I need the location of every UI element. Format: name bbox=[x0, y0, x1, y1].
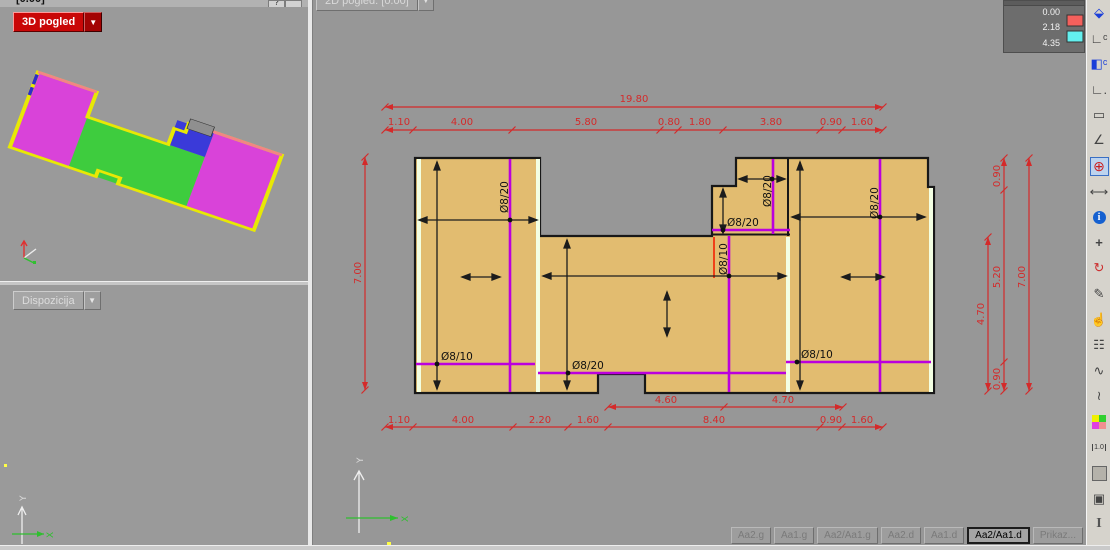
scale-dim-icon[interactable]: 1.0 bbox=[1090, 438, 1109, 457]
panel-dispozicija: Dispozicija ▼ Y X bbox=[0, 285, 308, 545]
rotate-icon[interactable]: ↻ bbox=[1090, 259, 1109, 278]
ucs-axis-icon: Y X bbox=[12, 495, 56, 544]
panel-title: [0.00] bbox=[16, 0, 45, 5]
tab-aa2g[interactable]: Aa2.g bbox=[731, 527, 771, 544]
dim-label: 1.10 bbox=[388, 415, 410, 426]
x-axis-label: X bbox=[46, 532, 56, 538]
color-areas-icon[interactable] bbox=[1090, 413, 1109, 432]
rebar-label: Ø8/20 bbox=[869, 187, 881, 219]
solid-box-icon[interactable]: ▣ bbox=[1090, 489, 1109, 508]
fill-area-icon[interactable] bbox=[1090, 464, 1109, 483]
y-axis-label: Y bbox=[356, 457, 366, 464]
panel-2d-view: 2D pogled: [0.00] ▼ bbox=[313, 0, 1086, 550]
rebar-label: Ø8/20 bbox=[499, 181, 511, 213]
view-3d-icon[interactable]: ⬙ bbox=[1090, 3, 1109, 22]
angle-icon[interactable]: ∠ bbox=[1090, 131, 1109, 150]
tab-aa2aa1d[interactable]: Aa2/Aa1.d bbox=[967, 527, 1030, 544]
dim-label: 1.60 bbox=[577, 415, 599, 426]
dim-label: 4.60 bbox=[655, 395, 677, 406]
panel-3d-view: [0.00] ? 3D pogled ▼ bbox=[0, 0, 308, 281]
legend-value: 4.35 bbox=[1020, 38, 1060, 48]
rebar-label: Ø8/10 bbox=[801, 349, 833, 361]
dim-label: 7.00 bbox=[353, 262, 364, 284]
dim-label: 4.70 bbox=[772, 395, 794, 406]
rebar-label: Ø8/10 bbox=[718, 243, 730, 275]
dim-label: 3.80 bbox=[760, 117, 782, 128]
dim-label: 1.80 bbox=[689, 117, 711, 128]
dim-label: 4.00 bbox=[451, 117, 473, 128]
legend-swatch-cyan bbox=[1067, 31, 1083, 42]
section-c-icon[interactable]: ∟ᶜ bbox=[1090, 29, 1109, 48]
dim-label: 4.70 bbox=[976, 303, 987, 325]
rebar-label: Ø8/20 bbox=[572, 360, 604, 372]
beam-profile-icon[interactable]: I bbox=[1090, 515, 1109, 534]
tab-prikaz[interactable]: Prikaz... bbox=[1033, 527, 1083, 544]
dim-label: 0.90 bbox=[992, 368, 1003, 390]
dim-label: 7.00 bbox=[1017, 266, 1028, 288]
dim-label: 1.10 bbox=[388, 117, 410, 128]
rebar-label: Ø8/20 bbox=[727, 217, 759, 229]
dimension-icon[interactable]: ⟷ bbox=[1090, 182, 1109, 201]
dim-label: 4.00 bbox=[452, 415, 474, 426]
x-axis-label: X bbox=[401, 516, 411, 522]
dim-label: 0.90 bbox=[820, 415, 842, 426]
legend-swatch-red bbox=[1067, 15, 1083, 26]
dim-label: 1.60 bbox=[851, 415, 873, 426]
dim-label: 0.80 bbox=[658, 117, 680, 128]
tab-aa1g[interactable]: Aa1.g bbox=[774, 527, 814, 544]
snap-point bbox=[4, 464, 7, 467]
axis-triad-icon bbox=[21, 241, 36, 264]
move-icon[interactable]: + bbox=[1090, 233, 1109, 252]
dim-label: 2.20 bbox=[529, 415, 551, 426]
snap-target-icon[interactable]: ⊕ bbox=[1090, 157, 1109, 176]
detail-view-icon[interactable]: ∟. bbox=[1090, 80, 1109, 99]
info-icon[interactable]: i bbox=[1090, 208, 1109, 227]
dim-label: 5.80 bbox=[575, 117, 597, 128]
result-tab-bar: Aa2.g Aa1.g Aa2/Aa1.g Aa2.d Aa1.d Aa2/Aa… bbox=[731, 527, 1083, 544]
height-legend: 0.00 2.18 4.35 bbox=[1003, 0, 1085, 53]
help-button[interactable]: ? bbox=[268, 0, 285, 7]
dispozicija-canvas: Y X bbox=[0, 285, 308, 550]
application-window: [0.00] ? 3D pogled ▼ bbox=[0, 0, 1110, 550]
panel-titlebar: [0.00] ? bbox=[0, 0, 308, 7]
view-c-icon[interactable]: ◧ᶜ bbox=[1090, 54, 1109, 73]
dim-label: 19.80 bbox=[620, 94, 649, 105]
dim-label: 0.90 bbox=[992, 165, 1003, 187]
rebar-label: Ø8/20 bbox=[762, 175, 774, 207]
draw-rebar-icon[interactable]: ✎ bbox=[1090, 285, 1109, 304]
rebar-edit-icon[interactable]: ≀ bbox=[1090, 387, 1109, 406]
legend-value: 2.18 bbox=[1020, 22, 1060, 32]
tab-aa2d[interactable]: Aa2.d bbox=[881, 527, 921, 544]
rebar-label: Ø8/10 bbox=[441, 351, 473, 363]
dim-label: 0.90 bbox=[820, 117, 842, 128]
status-strip bbox=[0, 545, 1110, 550]
dim-label: 1.60 bbox=[851, 117, 873, 128]
tab-aa1d[interactable]: Aa1.d bbox=[924, 527, 964, 544]
plan-drawing[interactable]: Ø8/20 Ø8/10 Ø8/20 Ø8/10 Ø8/20 Ø8/20 Ø8/2… bbox=[313, 0, 1086, 550]
legend-value: 0.00 bbox=[1020, 7, 1060, 17]
pan-hand-icon[interactable]: ☝ bbox=[1090, 310, 1109, 329]
window-button[interactable] bbox=[285, 0, 302, 7]
ucs-axis-icon: Y X bbox=[346, 457, 411, 533]
iso-3d-drawing bbox=[0, 8, 308, 280]
rebar-wave-icon[interactable]: ∿ bbox=[1090, 361, 1109, 380]
dim-label: 5.20 bbox=[992, 266, 1003, 288]
text-grid-icon[interactable]: ☷ bbox=[1090, 336, 1109, 355]
y-axis-label: Y bbox=[19, 495, 29, 502]
dim-label: 8.40 bbox=[703, 415, 725, 426]
right-toolbar: ⬙ ∟ᶜ ◧ᶜ ∟. ▭ ∠ ⊕ ⟷ i + ↻ ✎ ☝ ☷ ∿ ≀ 1.0 ▣… bbox=[1086, 0, 1110, 550]
tab-aa2aa1g[interactable]: Aa2/Aa1.g bbox=[817, 527, 878, 544]
select-rect-icon[interactable]: ▭ bbox=[1090, 105, 1109, 124]
legend-swatches bbox=[1066, 1, 1086, 47]
